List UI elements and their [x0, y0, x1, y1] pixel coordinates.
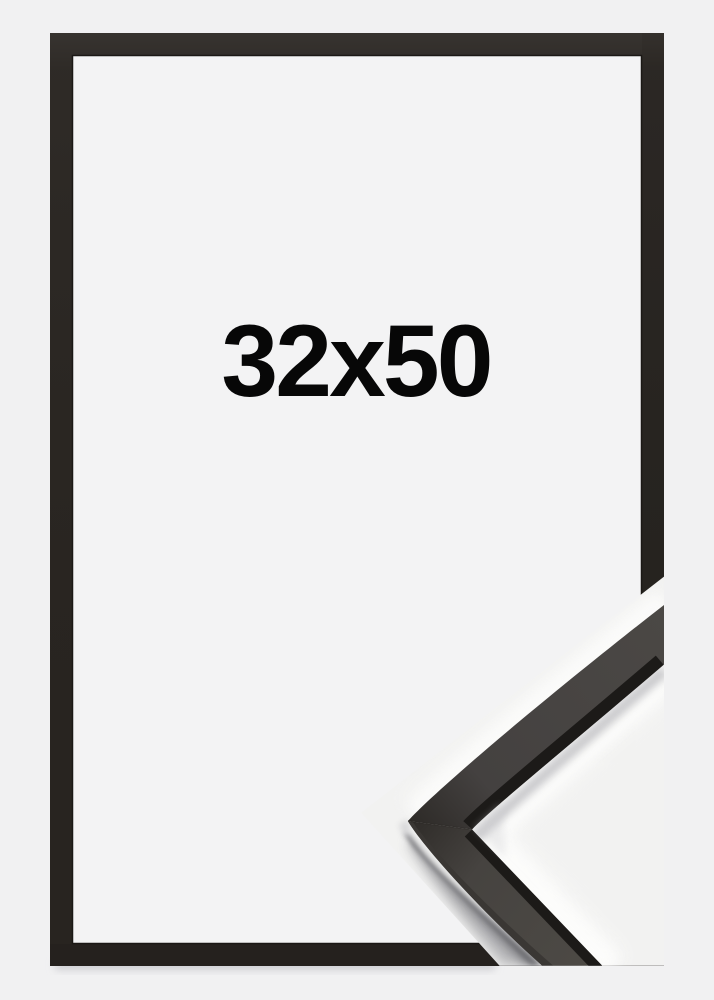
svg-text:32x50: 32x50 [221, 304, 490, 418]
